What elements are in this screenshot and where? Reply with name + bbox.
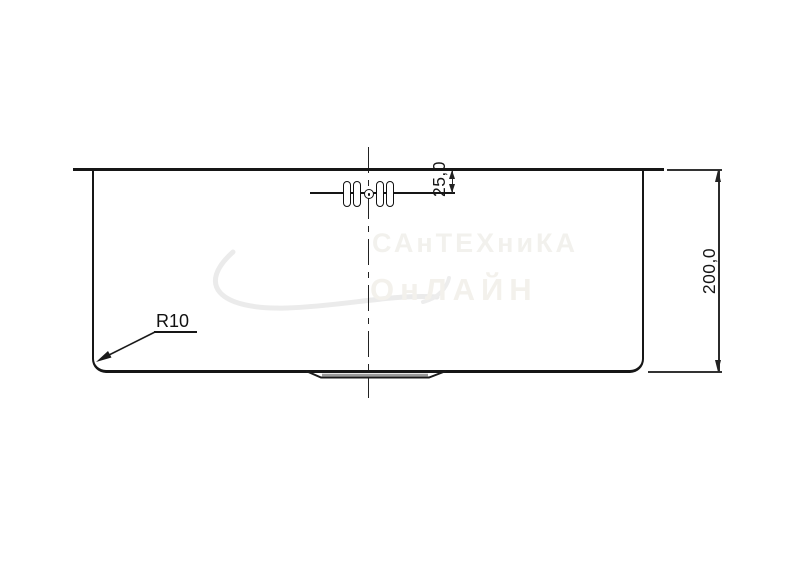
drain-recess: [300, 368, 455, 382]
dim-200-extension-top: [667, 169, 722, 171]
dim-25-label: 25,0: [429, 159, 447, 199]
dim-200-arrow-up-icon: [715, 170, 721, 182]
radius-callout-label: R10: [156, 311, 189, 332]
overflow-center-dot: [368, 193, 371, 196]
sink-rim-line: [73, 168, 664, 171]
dim-200-extension-bottom: [648, 371, 722, 373]
dim-200-arrow-down-icon: [715, 360, 721, 372]
technical-drawing-canvas: САнТЕХниКА ОнЛАЙН 25,0 200,0 R10: [0, 0, 797, 572]
dim-200-label: 200,0: [699, 236, 717, 306]
radius-callout-leader-arrow: [94, 330, 158, 366]
sink-bowl-outline: [92, 170, 644, 373]
radius-callout-underline: [154, 331, 197, 333]
